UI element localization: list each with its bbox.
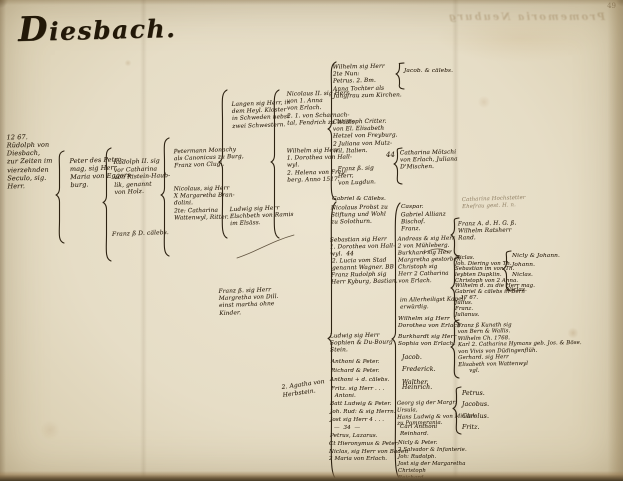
entry-agatha-note: 2. Agatha von Herbstein. [281, 378, 326, 399]
entry-petermann-monachy: Petermann Monachy als Canonicus zu Burg,… [174, 147, 244, 171]
entry-ludwig-ramis: Ludwig sig Herr Elschbeth von Ramis im E… [230, 205, 294, 229]
manuscript-page: Promemoria Neuburg 49 Diesbach. 12 67. R… [0, 0, 623, 481]
entry-gabriel-caelebs: Gabriel & Cälebs. [332, 196, 386, 203]
entry-hochstetter-note: Catharina Hochstetter Ehefrau gest. H. n… [462, 195, 526, 211]
entry-burkhardt-erlach: Burkhardt sig Herr Sophia von Erlach. [398, 334, 456, 348]
entry-nicly-johann: Nicly & Johann. Johann. Niclas. [512, 252, 560, 280]
generation-brace [452, 385, 464, 436]
generation-brace [55, 149, 67, 245]
entry-ludwig-stein: Ludwig sig Herr Sophien & Du-Bourg Stein… [330, 332, 393, 355]
tree-entry: Jost sig der Margaretha Christoph Reicha… [398, 461, 466, 481]
connector-curves [0, 0, 623, 481]
tree-entry: Joh. Rud: & sig Herrn. [330, 409, 396, 416]
generation-brace [393, 146, 405, 186]
entry-petrus-group: Petrus. Jacobus. Carolus. Fritz. [462, 388, 489, 434]
entry-franz-ratsherr: Franz A. d. H. G. ß. Wilhelm Ratsherr Ra… [458, 220, 517, 243]
tree-entry: Caspar. [401, 204, 424, 211]
entry-jacob-caelebs: Jacob. & cälebs. [404, 68, 453, 75]
tree-entry: Carl Anthoni Reinhard. [400, 424, 437, 438]
generation-brace [450, 318, 462, 380]
generation-brace [218, 88, 230, 240]
generation-brace [391, 201, 403, 481]
generation-brace [327, 60, 339, 202]
generation-brace [102, 146, 114, 263]
genealogy-tree-layer: 12 67. Rüdolph von Diesbach, zur Zeiten … [0, 0, 623, 481]
tree-entry: Heinrich. [402, 384, 432, 392]
tree-entry: Ct Hieronymus & Peter. [329, 441, 399, 448]
entry-kunath-group: Franz ß Kunath sig von Bern & Wallis. Wi… [458, 321, 583, 375]
generation-brace [395, 61, 407, 91]
entry-rudolph-von-diesbach: 12 67. Rüdolph von Diesbach, zur Zeiten … [7, 133, 53, 191]
tree-entry: Joh: Rudolph. [398, 454, 436, 461]
entry-gabriel-allianz: Gabriel Allianz Bischof. Franz. [401, 212, 446, 234]
entry-catharina-moetschi: Catharina Mötschi von Erlach, Juliana D'… [400, 149, 458, 172]
generation-brace [450, 255, 462, 325]
generation-brace [270, 88, 282, 240]
entry-nicolaus-probst: Nicolaus Probst zu Stiftung und Wohl zu … [331, 205, 389, 228]
tree-entry: 2 Salvador & Infanterie. [398, 447, 467, 454]
entry-franz-lugdun: Franz ß. sig Herr, von Lugdun. [338, 165, 377, 188]
tree-entry: Fritz. sig Herr . . . Antoni. [331, 386, 384, 400]
generation-brace [327, 200, 339, 481]
generation-brace [502, 249, 514, 293]
entry-franz-rudolph: Franz Rudolph sig Herr Kyburg, Bastian. [331, 271, 398, 287]
generation-brace [160, 136, 172, 258]
entry-wilhelm-top: Wilhelm sig Herr 2te Nun: Petrus. 2. Bm.… [333, 63, 402, 100]
entry-langen-kloster: Langen sig Herr, in dem Heyl. Kloster in… [232, 100, 292, 131]
generation-brace [450, 216, 462, 258]
tree-entry: Nicly & Peter. [398, 440, 437, 447]
tree-entry: Batt Ludwig & Peter. [330, 401, 392, 408]
entry-sebastian: Sebastian sig Herr 1. Dorothea von Hall-… [330, 236, 396, 259]
entry-franz-dill: Franz ß. sig Herr Margretha von Dill. ei… [219, 287, 280, 318]
